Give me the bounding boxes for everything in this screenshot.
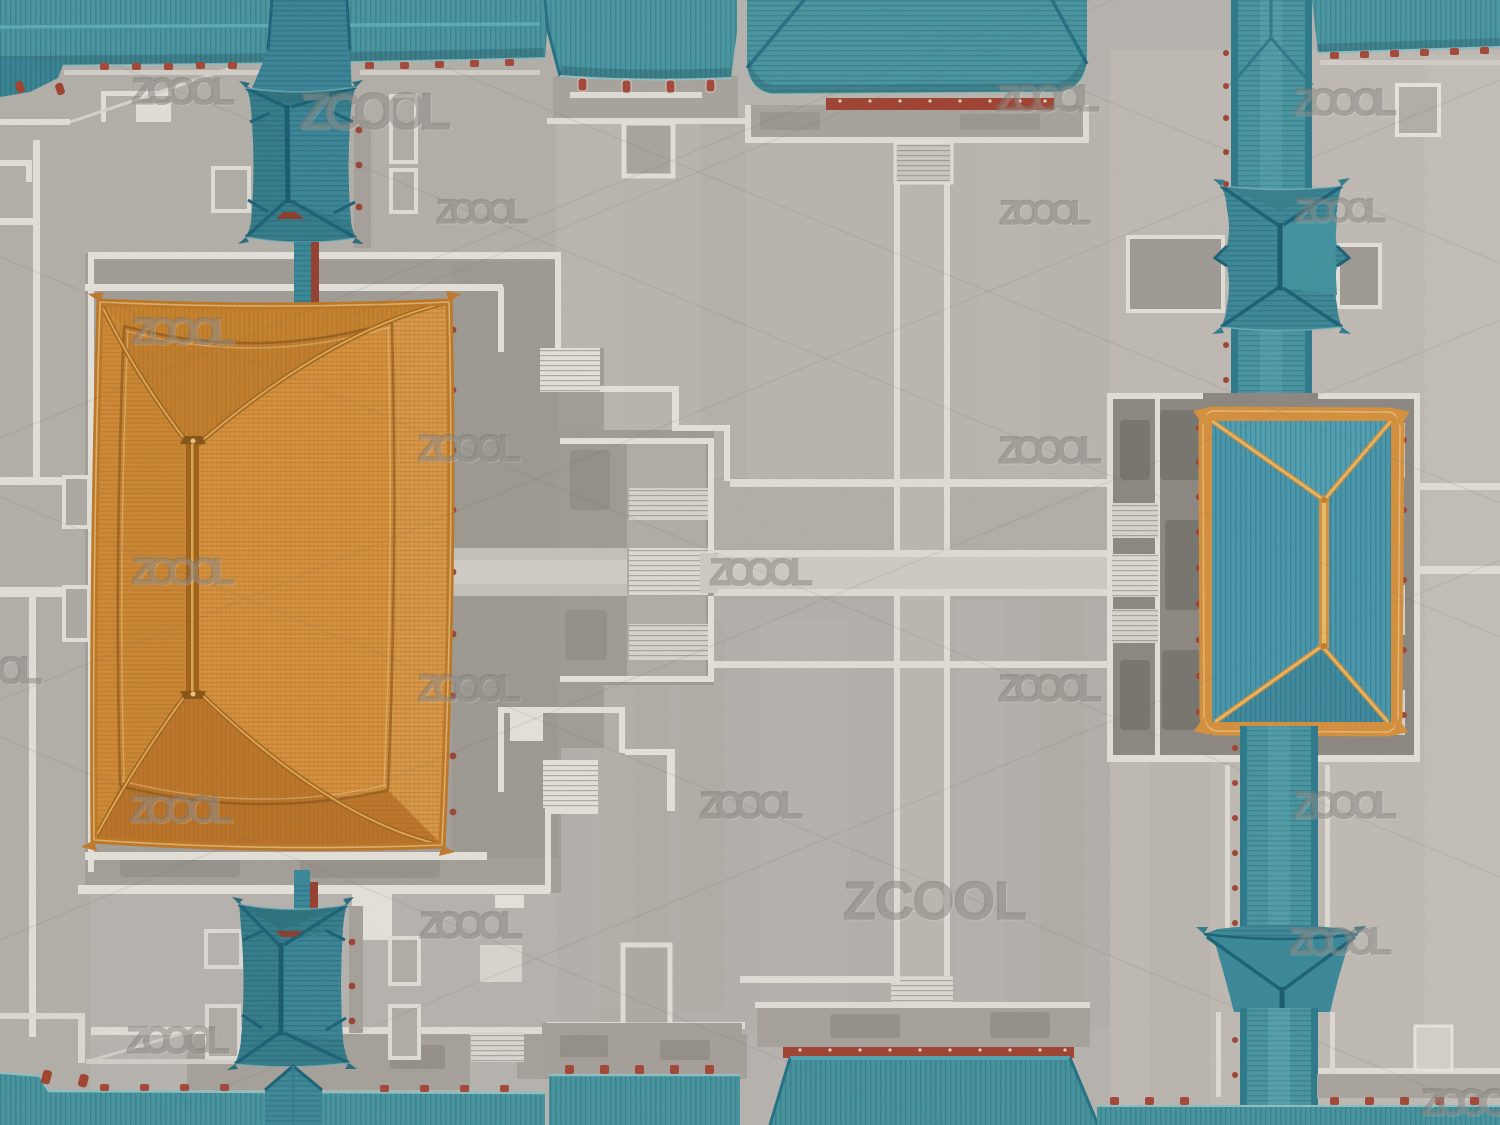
svg-text:ZCOOL: ZCOOL [131, 71, 235, 113]
svg-text:ZCOOL: ZCOOL [1294, 192, 1386, 230]
svg-text:ZCOOL: ZCOOL [0, 650, 42, 692]
svg-text:ZCOOL: ZCOOL [131, 551, 235, 593]
svg-text:ZCOOL: ZCOOL [417, 668, 521, 710]
svg-text:ZCOOL: ZCOOL [131, 311, 235, 353]
svg-text:ZCOOL: ZCOOL [699, 785, 803, 827]
svg-text:ZCOOL: ZCOOL [996, 78, 1100, 120]
svg-text:ZCOOL: ZCOOL [843, 871, 1027, 931]
svg-text:ZCOOL: ZCOOL [999, 194, 1091, 232]
svg-text:ZCOOL: ZCOOL [1421, 1082, 1500, 1124]
svg-text:ZCOOL: ZCOOL [419, 905, 523, 947]
svg-text:ZCOOL: ZCOOL [436, 193, 528, 231]
svg-text:ZCOOL: ZCOOL [709, 552, 813, 594]
svg-text:ZCOOL: ZCOOL [1293, 82, 1397, 124]
svg-text:ZCOOL: ZCOOL [1288, 921, 1392, 963]
svg-text:ZCOOL: ZCOOL [1293, 785, 1397, 827]
svg-text:ZCOOL: ZCOOL [299, 83, 451, 141]
svg-text:ZCOOL: ZCOOL [126, 1020, 230, 1062]
svg-text:ZCOOL: ZCOOL [998, 668, 1102, 710]
svg-text:ZCOOL: ZCOOL [998, 430, 1102, 472]
svg-text:ZCOOL: ZCOOL [417, 428, 521, 470]
svg-text:ZCOOL: ZCOOL [129, 789, 233, 831]
